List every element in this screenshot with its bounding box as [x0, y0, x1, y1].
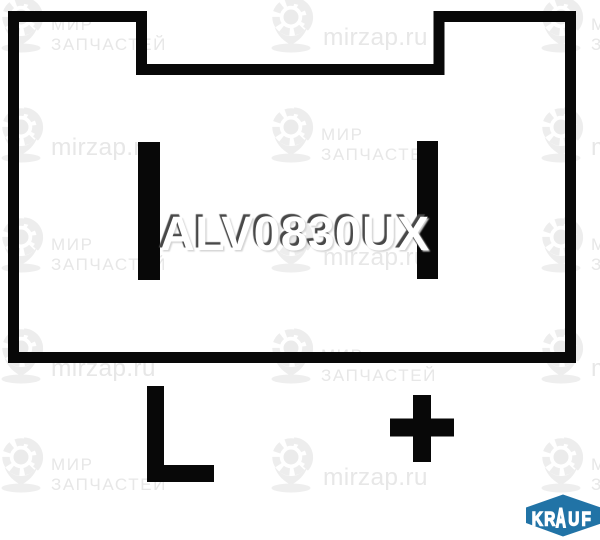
svg-text:F: F [582, 507, 592, 529]
svg-text:A: A [556, 504, 566, 533]
svg-text:R: R [544, 507, 555, 529]
svg-text:U: U [568, 507, 579, 529]
svg-text:K: K [532, 507, 543, 529]
